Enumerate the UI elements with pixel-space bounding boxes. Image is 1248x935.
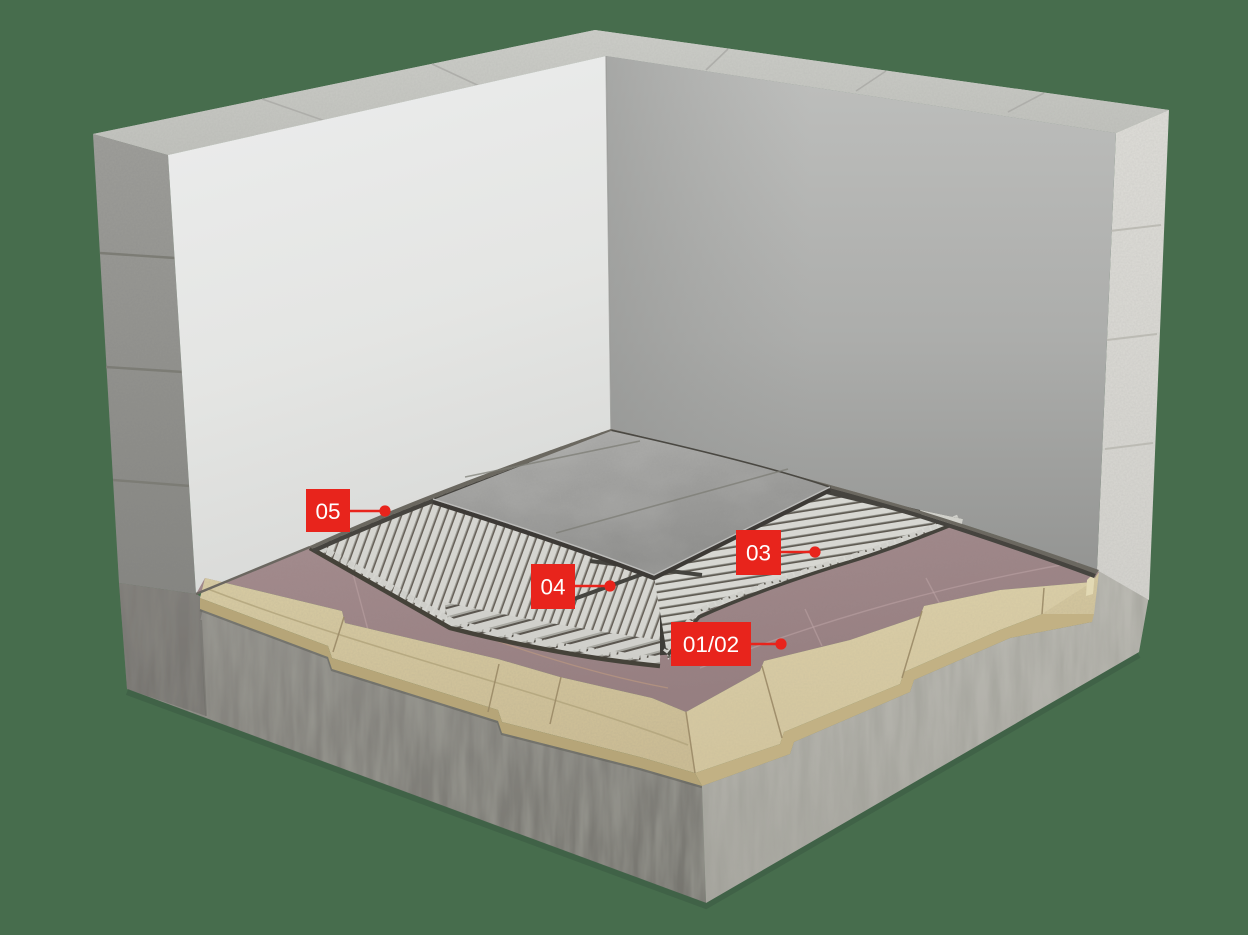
- svg-text:03: 03: [746, 541, 771, 566]
- svg-text:05: 05: [315, 499, 340, 524]
- svg-text:01/02: 01/02: [683, 632, 739, 657]
- svg-text:04: 04: [540, 575, 565, 600]
